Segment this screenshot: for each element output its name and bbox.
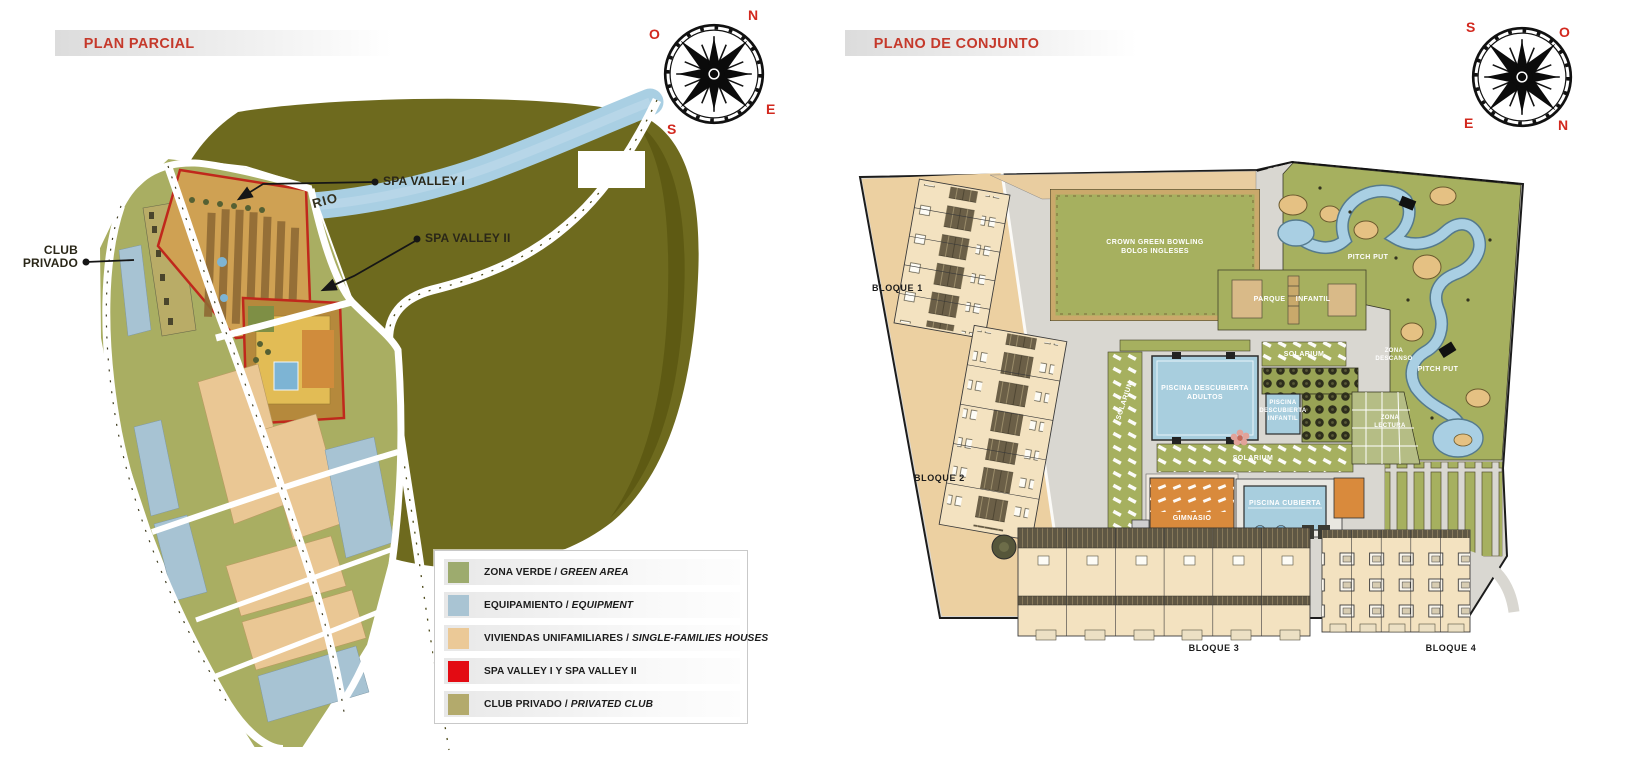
- compass-left-letter-s: S: [667, 121, 676, 137]
- zona-lectura-label: ZONA LECTURA: [1366, 414, 1414, 430]
- legend-row-houses: VIVIENDAS UNIFAMILIARES / SINGLE-FAMILIE…: [444, 625, 740, 651]
- bloque-2-label: BLOQUE 2: [914, 473, 965, 483]
- bloque-3-building: [1018, 528, 1310, 640]
- legend-label-en: EQUIPMENT: [572, 599, 633, 611]
- compass-left-letter-o: O: [649, 26, 660, 42]
- bowling-label: CROWN GREEN BOWLING BOLOS INGLESES: [1080, 238, 1230, 256]
- solarium-label-bottom: SOLARIUM: [1205, 454, 1301, 463]
- legend-row-spa: SPA VALLEY I Y SPA VALLEY II: [444, 658, 740, 684]
- right-page-title: PLANO DE CONJUNTO: [845, 35, 1039, 52]
- piscina-infantil-label: PISCINA DESCUBIERTA INFANTIL: [1258, 399, 1308, 423]
- bloque-4-label: BLOQUE 4: [1421, 643, 1481, 653]
- compass-right-letter-n: N: [1558, 117, 1568, 133]
- piscina-cubierta-label: PISCINA CUBIERTA: [1244, 499, 1326, 508]
- compass-right-letter-e: E: [1464, 115, 1473, 131]
- legend-row-club: CLUB PRIVADO / PRIVATED CLUB: [444, 691, 740, 717]
- solarium-label-mid: SOLARIUM: [1262, 350, 1346, 359]
- parque-infantil-label: PARQUE INFANTIL: [1222, 295, 1362, 304]
- legend-label-es: ZONA VERDE /: [484, 566, 560, 578]
- club-privado-label: CLUB PRIVADO: [16, 244, 78, 270]
- legend-row-green-area: ZONA VERDE / GREEN AREA: [444, 559, 740, 585]
- legend-swatch-green-area: [448, 562, 469, 583]
- roundabout: [992, 535, 1016, 559]
- legend-label-es: VIVIENDAS UNIFAMILIARES /: [484, 632, 632, 644]
- legend-swatch-houses: [448, 628, 469, 649]
- legend-label-es: SPA VALLEY I Y SPA VALLEY II: [484, 665, 637, 677]
- brochure-page: PLAN PARCIAL PLANO DE CONJUNTO N O E S S…: [0, 0, 1638, 773]
- zona-descanso-label: ZONA DESCANSO: [1370, 347, 1418, 363]
- piscina-adultos-label: PISCINA DESCUBIERTA ADULTOS: [1155, 384, 1255, 402]
- spa-valley-2-label: SPA VALLEY II: [425, 231, 511, 245]
- legend-label-es: EQUIPAMIENTO /: [484, 599, 572, 611]
- left-title-bar: PLAN PARCIAL: [55, 30, 393, 56]
- right-title-bar: PLANO DE CONJUNTO: [845, 30, 1137, 56]
- blank-box: [578, 151, 645, 188]
- bloque-4-building: [1322, 530, 1470, 632]
- compass-left-letter-e: E: [766, 101, 775, 117]
- legend-row-equipment: EQUIPAMIENTO / EQUIPMENT: [444, 592, 740, 618]
- legend-label-en: GREEN AREA: [560, 566, 629, 578]
- compass-right-letter-s: S: [1466, 19, 1475, 35]
- left-compass-rose: [665, 25, 763, 123]
- legend-label-en: SINGLE-FAMILIES HOUSES: [632, 632, 768, 644]
- legend-swatch-club: [448, 694, 469, 715]
- legend: ZONA VERDE / GREEN AREA EQUIPAMIENTO / E…: [434, 550, 748, 724]
- compass-left-letter-n: N: [748, 7, 758, 23]
- left-page-title: PLAN PARCIAL: [55, 35, 195, 52]
- legend-label-es: CLUB PRIVADO /: [484, 698, 571, 710]
- legend-swatch-equipment: [448, 595, 469, 616]
- compass-right-letter-o: O: [1559, 24, 1570, 40]
- legend-swatch-spa: [448, 661, 469, 682]
- right-compass-rose: [1473, 28, 1571, 126]
- legend-label-en: PRIVATED CLUB: [571, 698, 653, 710]
- pitch-put-label-2: PITCH PUT: [1408, 365, 1468, 374]
- site-plans-artwork: [0, 0, 1638, 773]
- pitch-put-label-1: PITCH PUT: [1338, 253, 1398, 262]
- gimnasio-label: GIMNASIO: [1152, 514, 1232, 523]
- bloque-3-label: BLOQUE 3: [1184, 643, 1244, 653]
- spa-valley-1-label: SPA VALLEY I: [383, 174, 465, 188]
- bloque-1-label: BLOQUE 1: [872, 283, 923, 293]
